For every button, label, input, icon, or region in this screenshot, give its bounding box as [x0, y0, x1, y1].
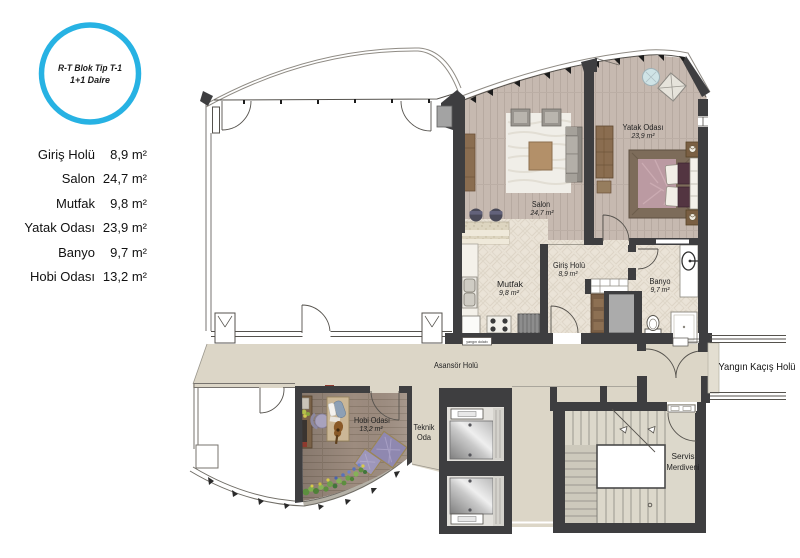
svg-text:Hobi Odası: Hobi Odası [30, 269, 95, 284]
svg-text:Asansör Holü: Asansör Holü [434, 360, 478, 370]
svg-text:Yangın Kaçış Holü: Yangın Kaçış Holü [719, 361, 796, 373]
svg-text:13,2 m²: 13,2 m² [360, 424, 383, 433]
svg-text:Merdiveni: Merdiveni [667, 463, 700, 472]
svg-text:yangın dolabı: yangın dolabı [466, 340, 488, 344]
svg-text:8,9 m²: 8,9 m² [559, 269, 578, 278]
svg-text:9,8 m²: 9,8 m² [110, 196, 148, 211]
svg-text:R-T Blok Tip T-1: R-T Blok Tip T-1 [58, 63, 122, 73]
svg-text:8,9 m²: 8,9 m² [110, 147, 148, 162]
svg-text:9,8 m²: 9,8 m² [499, 288, 519, 297]
svg-text:9,7 m²: 9,7 m² [651, 285, 670, 294]
svg-text:1+1 Daire: 1+1 Daire [70, 75, 110, 85]
svg-text:Yatak Odası: Yatak Odası [24, 220, 95, 235]
svg-text:9,7 m²: 9,7 m² [110, 245, 148, 260]
svg-text:Giriş Holü: Giriş Holü [38, 147, 95, 162]
svg-text:24,7 m²: 24,7 m² [103, 171, 148, 186]
svg-text:23,9 m²: 23,9 m² [631, 131, 655, 140]
svg-text:Servis: Servis [672, 452, 695, 461]
svg-text:Banyo: Banyo [58, 245, 95, 260]
svg-text:Oda: Oda [417, 433, 432, 442]
svg-text:23,9 m²: 23,9 m² [103, 220, 148, 235]
svg-text:24,7 m²: 24,7 m² [530, 208, 554, 217]
svg-text:13,2 m²: 13,2 m² [103, 269, 148, 284]
svg-text:Teknik: Teknik [414, 423, 436, 432]
svg-text:Mutfak: Mutfak [56, 196, 96, 211]
svg-text:Salon: Salon [62, 171, 95, 186]
